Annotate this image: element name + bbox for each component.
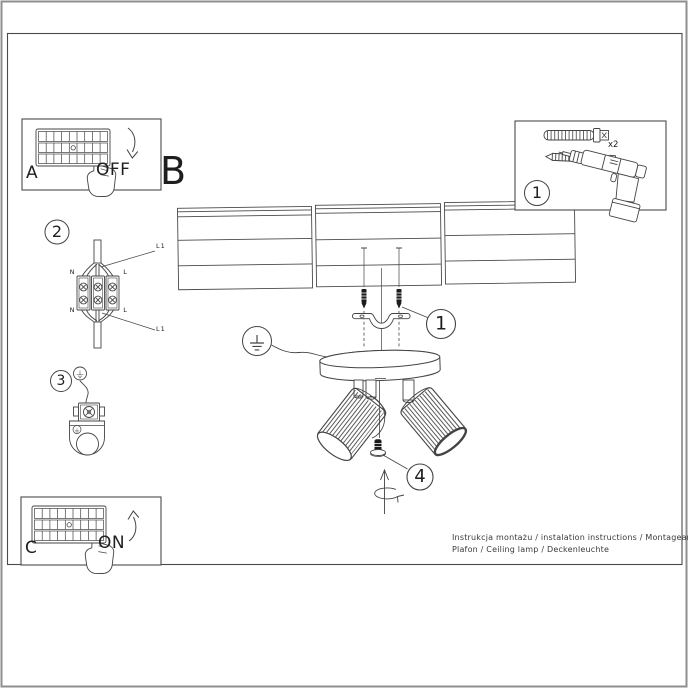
l1-bottom-leader: [102, 313, 155, 330]
mounting-bracket-drawing: [352, 248, 455, 351]
adjust-step-number: 4: [414, 468, 425, 486]
step-4-leader: [383, 455, 408, 469]
wiring-step-number: 2: [52, 224, 62, 240]
ceiling-panels-drawing: [177, 201, 575, 290]
footer-title-line: Instrukcja montażu / instalation instruc…: [452, 534, 688, 542]
wire-label-l1-bottom: L1: [156, 326, 166, 333]
mounting-kit-box: [515, 121, 666, 222]
wire-label-l-bottom: L: [123, 307, 127, 314]
mount-step-number: 1: [435, 315, 447, 334]
step-b-label: B: [160, 152, 186, 190]
on-label: ON: [98, 535, 125, 552]
rotation-arrow-icon: [375, 470, 404, 514]
lamp-base: [320, 348, 441, 382]
off-label: OFF: [96, 162, 130, 179]
step-a-box: [22, 119, 161, 197]
wire-label-l1-top: L1: [156, 243, 166, 250]
step-c-box: [21, 497, 161, 574]
step-a-label: A: [26, 165, 38, 182]
l1-top-leader: [101, 251, 155, 267]
wire-label-n-top: N: [70, 269, 75, 276]
wire-label-n-bottom: N: [70, 307, 75, 314]
wire-label-l-top: L: [123, 269, 127, 276]
instruction-line-art: [0, 0, 688, 688]
kit-step-number: 1: [532, 185, 542, 201]
window-border: [2, 2, 687, 687]
footer-product-line: Plafon / Ceiling lamp / Deckenleuchte: [452, 546, 609, 554]
step-c-label: C: [25, 540, 37, 557]
dowel-quantity-label: x2: [608, 141, 618, 150]
ceiling-lamp-drawing: [313, 348, 470, 514]
ground-step-number: 3: [57, 374, 66, 388]
ceiling-screw-icon: [397, 289, 402, 309]
earth-wire: [272, 345, 332, 358]
protective-earth-symbol: [243, 327, 332, 358]
locking-screw-drawing: [371, 440, 386, 457]
ceiling-screw-icon: [362, 289, 367, 309]
breaker-panel-icon: [32, 506, 106, 543]
instruction-sheet: A OFF B C ON 1 1 2 3 4 x2 N L N L L1 L1 …: [0, 0, 688, 688]
